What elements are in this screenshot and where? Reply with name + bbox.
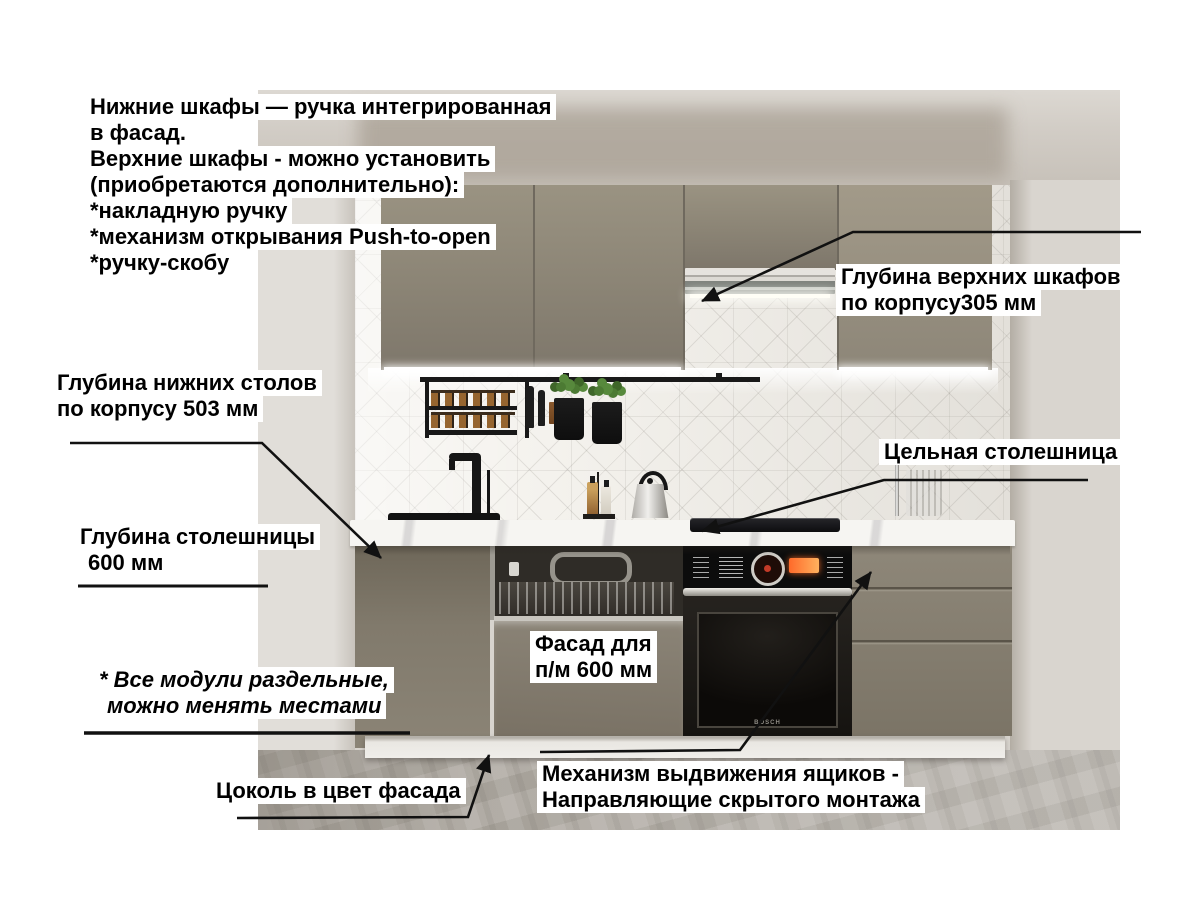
- callout-line: *механизм открывания Push-to-open: [85, 224, 496, 250]
- spice-shelf: [425, 382, 529, 438]
- oil-bottle: [587, 482, 598, 518]
- callout-line: можно менять местами: [102, 693, 386, 719]
- callout-line: (приобретаются дополнительно):: [85, 172, 464, 198]
- spice-jars-row: [431, 412, 515, 428]
- callout-line: Фасад для: [530, 631, 657, 657]
- dishwasher-interior: [490, 546, 693, 620]
- countertop-shadow: [355, 546, 1010, 555]
- callout-line: Глубина верхних шкафов: [836, 264, 1126, 290]
- callout-plinth: Цоколь в цвет фасада: [211, 778, 466, 804]
- faucet-spout-tip: [449, 459, 455, 470]
- oven-menu-text: [719, 554, 743, 578]
- bottle-cap: [590, 476, 595, 483]
- callout-line: Механизм выдвижения ящиков -: [537, 761, 904, 787]
- range-hood: [685, 268, 835, 294]
- countertop: [350, 520, 1015, 546]
- callout-line: *накладную ручку: [85, 198, 292, 224]
- dishwasher-handle-recess: [550, 552, 632, 586]
- oven-panel-ticks: [693, 556, 709, 578]
- callout-line: в фасад.: [85, 120, 191, 146]
- callout-drawer-slides: Механизм выдвижения ящиков - Направляющи…: [537, 761, 925, 813]
- bottle-cap: [604, 480, 609, 487]
- callout-line: по корпусу 503 мм: [52, 396, 263, 422]
- rail-mount: [563, 373, 569, 382]
- drawer-stack: [852, 546, 1012, 736]
- callout-line: *ручку-скобу: [85, 250, 234, 276]
- drawer-seam: [852, 587, 1012, 592]
- callout-line: 600 мм: [83, 550, 168, 576]
- led-strip-right: [839, 367, 988, 371]
- callout-line: * Все модули раздельные,: [94, 667, 394, 693]
- callout-line: Цельная столешница: [879, 439, 1122, 465]
- callout-line: по корпусу305 мм: [836, 290, 1041, 316]
- oven-panel-ticks: [827, 556, 843, 578]
- oven-handle: [683, 588, 852, 596]
- callout-modules-note: * Все модули раздельные, можно менять ме…: [94, 667, 394, 719]
- cooktop: [690, 518, 840, 532]
- oven-display: [789, 558, 819, 573]
- herb-plant: [594, 386, 604, 396]
- kettle-knob: [647, 478, 653, 484]
- led-strip-left: [384, 367, 681, 371]
- callout-line: п/м 600 мм: [530, 657, 657, 683]
- spice-jars-row: [431, 390, 515, 406]
- callout-handles-note: Нижние шкафы — ручка интегрированная в ф…: [85, 94, 556, 276]
- drinking-glass: [906, 470, 942, 516]
- shelf-bar: [429, 430, 517, 435]
- hood-light: [690, 294, 830, 298]
- rail-mount: [716, 373, 722, 382]
- towel-rail: [895, 458, 899, 516]
- oven-dial-indicator: [764, 565, 771, 572]
- oven-door: BOSCH: [683, 596, 852, 748]
- hanging-planter: [592, 402, 622, 444]
- callout-base-cabinet-depth: Глубина нижних столов по корпусу 503 мм: [52, 370, 322, 422]
- dishwasher-rack: [499, 582, 674, 614]
- oven-brand-label: BOSCH: [683, 720, 852, 726]
- callout-line: Глубина столешницы: [75, 524, 320, 550]
- cruet-stand: [583, 514, 615, 519]
- callout-line: Верхние шкафы - можно установить: [85, 146, 495, 172]
- faucet-body: [472, 453, 481, 517]
- callout-upper-cabinet-depth: Глубина верхних шкафов по корпусу305 мм: [836, 264, 1126, 316]
- callout-line: Направляющие скрытого монтажа: [537, 787, 925, 813]
- oven-dial: [751, 552, 785, 586]
- herb-plant: [556, 382, 566, 392]
- drawer-seam: [852, 640, 1012, 645]
- oven: BOSCH: [683, 546, 852, 748]
- callout-line: Цоколь в цвет фасада: [211, 778, 466, 804]
- pepper-grinder: [526, 386, 534, 428]
- callout-dishwasher-facade: Фасад для п/м 600 мм: [530, 631, 657, 683]
- callout-line: Нижние шкафы — ручка интегрированная: [85, 94, 556, 120]
- oven-window: [697, 612, 838, 728]
- faucet-lever: [487, 470, 490, 514]
- plinth: [365, 736, 1005, 758]
- shelf-bar: [429, 406, 517, 410]
- hanging-planter: [554, 398, 584, 440]
- callout-line: Глубина нижних столов: [52, 370, 322, 396]
- dish: [509, 562, 519, 576]
- pepper-grinder: [538, 390, 545, 426]
- annotated-kitchen-figure: BOSCH Нижние шкафы — ручка интегрированн…: [0, 0, 1201, 900]
- upper-cabinet-above-hood: [685, 185, 837, 270]
- callout-countertop-depth: Глубина столешницы 600 мм: [75, 524, 320, 576]
- callout-solid-countertop: Цельная столешница: [879, 439, 1122, 465]
